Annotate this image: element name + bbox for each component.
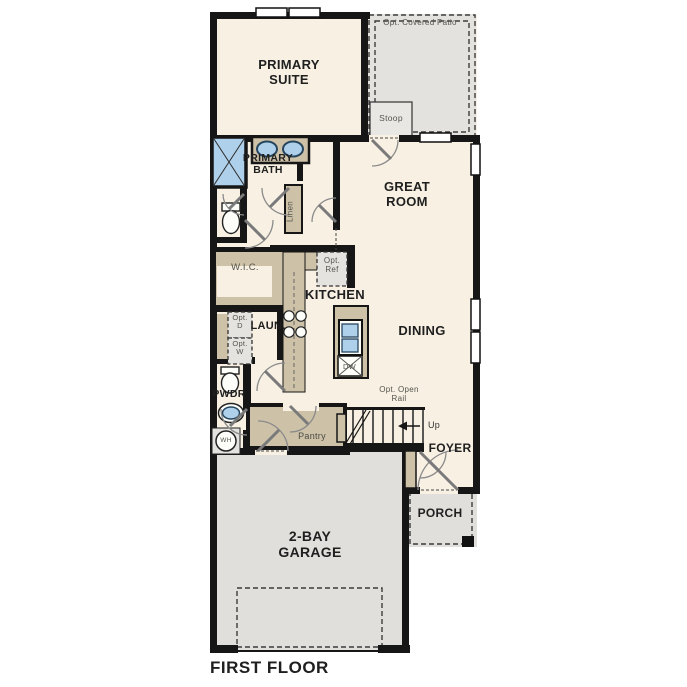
room-label-kitchen: KITCHEN [300,288,370,303]
floor-plan-drawing [0,0,687,687]
room-label-wic: W.I.C. [222,263,268,274]
pantry-label: Pantry [283,431,341,441]
foyer-closet-wall [405,451,416,488]
opt-ref-label: Opt. Ref [318,257,346,275]
garage-door-sill [238,650,380,652]
room-label-powder: PWDR [208,389,250,401]
room-label-great-room: GREAT ROOM [379,180,435,209]
floor-plan: Opt. Covered Patio PRIMARY SUITE Stoop P… [0,0,687,687]
wall-suite-right [361,12,368,142]
wall-powder-right-upper [243,363,251,410]
window-dining-1 [471,299,480,330]
wall-greatroom-left [333,142,340,230]
wall-left [210,12,217,653]
pantry-door-gap [283,402,319,411]
wall-toilet-room-bottom [210,237,247,243]
wall-ref-right [347,252,355,288]
patio-label: Opt. Covered Patio [360,19,480,28]
water-heater-label: WH [215,437,237,444]
powder-sink [219,404,244,423]
opt-open-rail-label: Opt. Open Rail [372,386,426,404]
opt-dryer-label: Opt. D [229,314,251,331]
window-dining-2 [471,332,480,363]
porch-column [462,536,474,547]
room-label-dining: DINING [387,324,457,339]
up-label: Up [425,420,443,430]
window-greatroom-top [420,133,451,142]
wall-laundry-top [210,305,285,312]
linen-label: Linen [287,188,300,236]
wall-garage-bottom-right [378,645,410,653]
window-suite-1 [256,8,287,17]
room-label-garage: 2-BAY GARAGE [274,529,346,560]
stoop-label: Stoop [370,114,412,124]
room-label-laundry: LAUN. [248,320,288,332]
wall-laundry-right [277,305,283,360]
window-suite-2 [289,8,320,17]
stairs-rail [345,407,425,410]
room-label-foyer: FOYER [424,442,476,455]
floor-title: FIRST FLOOR [210,658,329,678]
room-label-porch: PORCH [411,507,469,520]
island-sink [339,320,362,355]
room-label-primary-suite: PRIMARY SUITE [253,58,325,87]
wall-toilet-room [240,185,247,240]
dishwasher-label: DW [338,363,361,371]
room-label-primary-bath: PRIMARY BATH [240,153,296,177]
wall-garage-bottom-left [210,645,238,653]
window-greatroom-right [471,144,480,175]
opt-washer-label: Opt. W [229,340,251,357]
